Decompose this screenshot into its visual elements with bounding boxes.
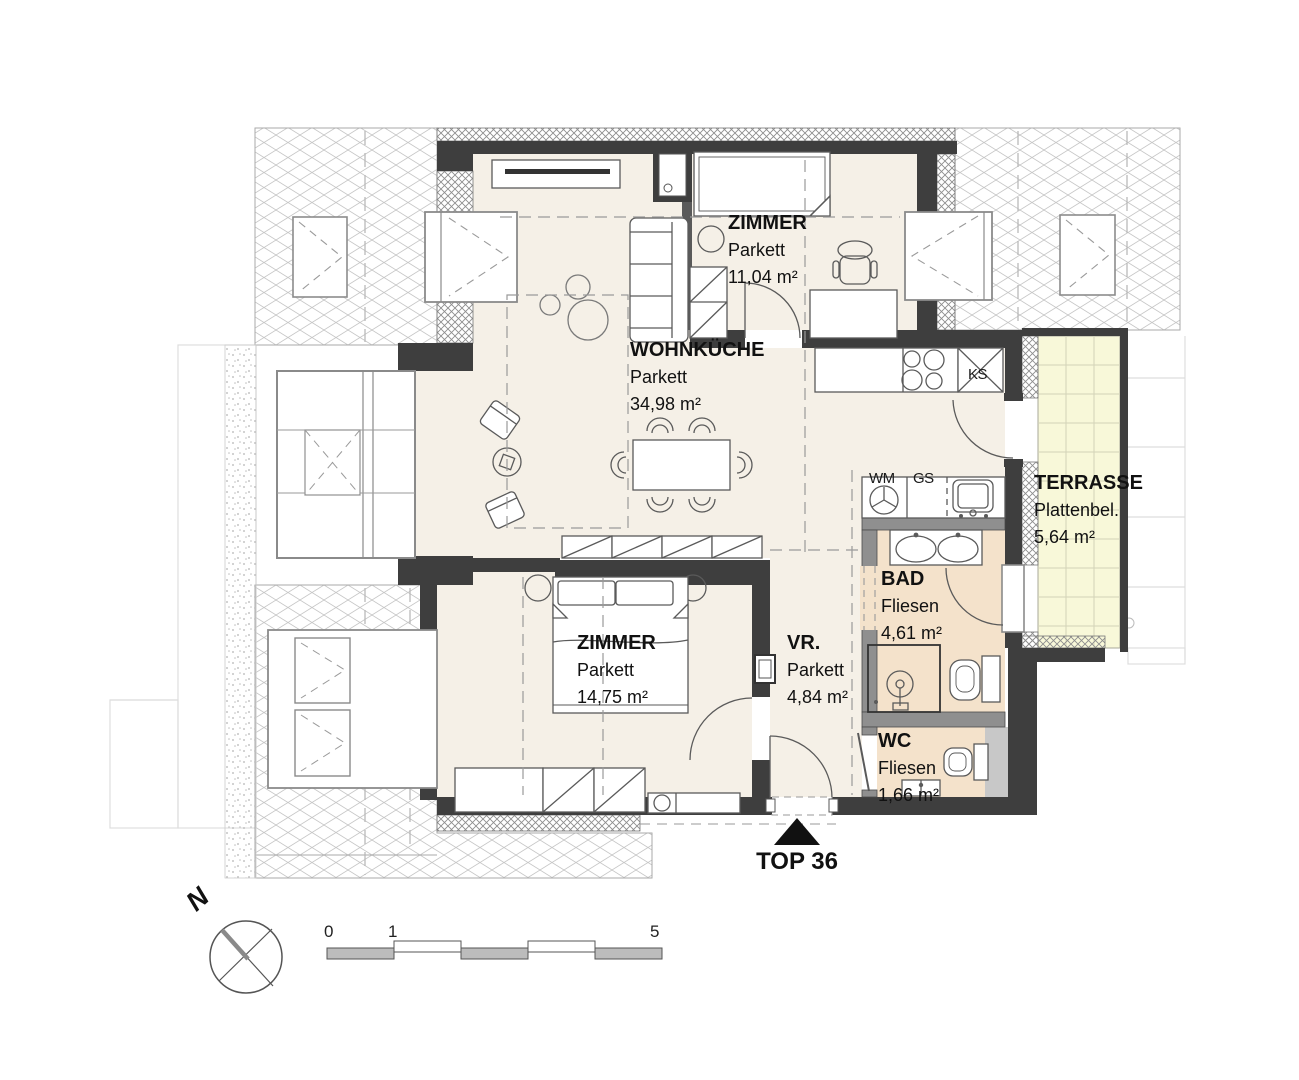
north-compass-icon [210,921,282,993]
room-label-bad: BAD Fliesen 4,61 m² [881,565,942,647]
room-title: TERRASSE [1034,469,1143,497]
unit-label: TOP 36 [742,848,852,876]
appliance-label-gs: GS [913,470,934,487]
scale-label-0: 0 [324,922,333,942]
room-floor: Parkett [577,657,656,684]
room-floor: Fliesen [881,593,942,620]
room-area: 1,66 m² [878,782,939,809]
room-label-wc: WC Fliesen 1,66 m² [878,727,939,809]
scale-label-5: 5 [650,922,659,942]
room-title: WOHNKÜCHE [630,336,764,364]
room-title: ZIMMER [728,209,807,237]
room-area: 11,04 m² [728,264,807,291]
room-title: ZIMMER [577,629,656,657]
room-area: 4,61 m² [881,620,942,647]
scale-bar [327,941,662,959]
room-area: 4,84 m² [787,684,848,711]
appliance-label-wm: WM [869,470,895,487]
room-floor: Parkett [787,657,848,684]
room-area: 5,64 m² [1034,524,1143,551]
room-title: VR. [787,629,848,657]
appliance-label-ks: KS [968,366,987,383]
room-area: 14,75 m² [577,684,656,711]
room-floor: Parkett [630,364,764,391]
room-label-terrasse: TERRASSE Plattenbel. 5,64 m² [1034,469,1143,551]
room-floor: Plattenbel. [1034,497,1143,524]
room-area: 34,98 m² [630,391,764,418]
room-floor: Fliesen [878,755,939,782]
room-label-vorraum: VR. Parkett 4,84 m² [787,629,848,711]
room-label-wohnkueche: WOHNKÜCHE Parkett 34,98 m² [630,336,764,418]
room-label-zimmer-top: ZIMMER Parkett 11,04 m² [728,209,807,291]
floor-plan-page: ZIMMER Parkett 11,04 m² WOHNKÜCHE Parket… [0,0,1299,1080]
entrance-arrow [774,818,820,845]
shaft-niche [659,154,686,196]
room-floor: Parkett [728,237,807,264]
scale-label-1: 1 [388,922,397,942]
room-title: WC [878,727,939,755]
room-title: BAD [881,565,942,593]
room-label-zimmer-bottom: ZIMMER Parkett 14,75 m² [577,629,656,711]
